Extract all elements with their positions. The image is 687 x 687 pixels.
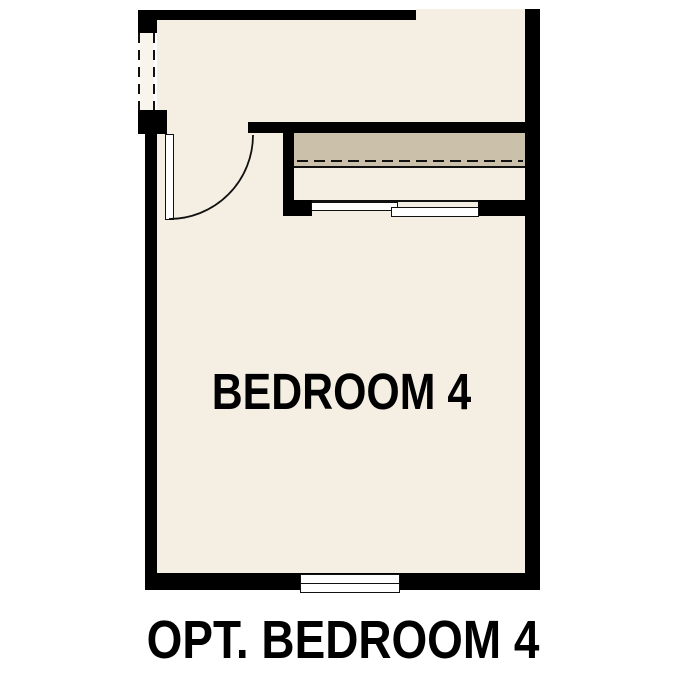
wall-top-left-corner bbox=[138, 10, 157, 33]
room-label: BEDROOM 4 bbox=[157, 365, 525, 417]
wall-top bbox=[138, 10, 416, 20]
closet-jamb-right bbox=[478, 200, 525, 216]
wall-right bbox=[525, 9, 540, 590]
opening-dashed-line-left bbox=[138, 33, 140, 110]
closet-shelf bbox=[294, 133, 525, 168]
plan-caption-text: OPT. BEDROOM 4 bbox=[147, 609, 540, 671]
opening-dashed-line-right bbox=[153, 33, 155, 110]
room-floor bbox=[157, 20, 525, 573]
plan-caption: OPT. BEDROOM 4 bbox=[0, 612, 687, 668]
door-leaf bbox=[165, 134, 174, 220]
closet-jamb-left bbox=[283, 200, 312, 216]
top-opening-floor bbox=[416, 9, 525, 21]
floor-plan: BEDROOM 4 OPT. BEDROOM 4 bbox=[0, 0, 687, 687]
wall-closet-header bbox=[248, 122, 525, 133]
closet-rod-dashed-line bbox=[297, 160, 523, 162]
wall-left bbox=[145, 134, 157, 590]
wall-door-jamb-block bbox=[138, 110, 167, 134]
wall-opening-floor bbox=[140, 33, 154, 110]
sliding-door-panel-back bbox=[391, 207, 479, 217]
room-label-text: BEDROOM 4 bbox=[211, 362, 470, 421]
window-mullion bbox=[301, 583, 399, 585]
window bbox=[300, 574, 400, 593]
sliding-door-panel-front bbox=[311, 202, 398, 211]
